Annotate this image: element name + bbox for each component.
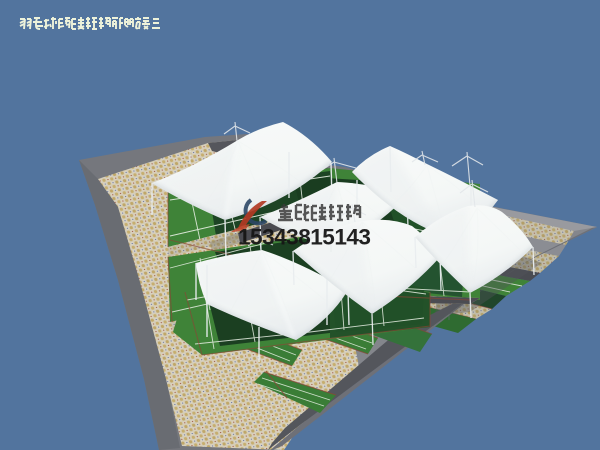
svg-text:15343815143: 15343815143 (238, 225, 371, 250)
